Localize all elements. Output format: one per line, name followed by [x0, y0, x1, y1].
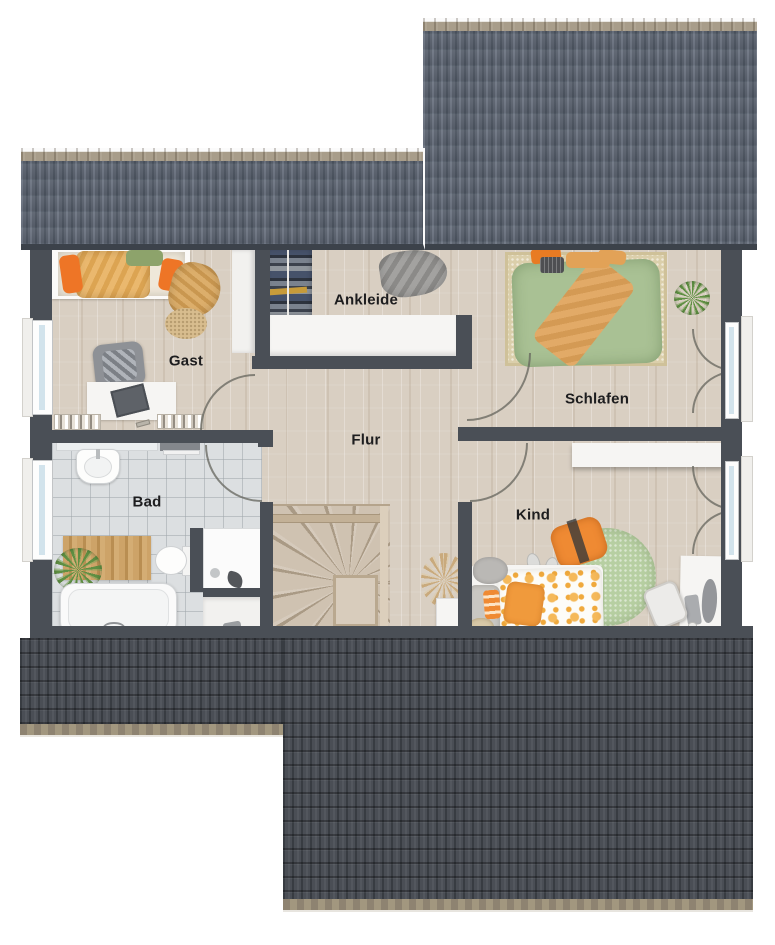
roof-ridge-right: [423, 18, 757, 31]
schlafen-blanket-orange: [531, 258, 636, 367]
gast-books-left: [54, 414, 101, 430]
gast-window-glass: [39, 325, 45, 410]
wall-schlafen-kind: [458, 427, 723, 441]
wall-ankleide-south: [252, 356, 472, 369]
gast-tall-wardrobe: [232, 250, 255, 353]
kind-window-glass: [729, 466, 734, 555]
wall-kind-west: [458, 502, 472, 628]
kind-cushion-striped: [483, 589, 501, 619]
schlafen-plant: [674, 281, 710, 315]
ankleide-sideboard: [268, 315, 458, 357]
room-label-flur: Flur: [351, 432, 380, 449]
bad-faucet: [96, 449, 100, 459]
wall-bad-corner: [258, 430, 273, 447]
floor-plan: Gast Ankleide Schlafen Flur Bad Kind: [0, 0, 775, 945]
room-label-kind: Kind: [516, 507, 550, 524]
bad-radiator-bar: [163, 450, 200, 455]
room-label-gast: Gast: [169, 353, 203, 370]
roof-bottom-right: [283, 638, 753, 912]
bad-shower-drain: [210, 568, 220, 578]
kind-wardrobe: [572, 443, 723, 467]
staircase-void: [333, 575, 378, 627]
schlafen-window-glass: [729, 327, 734, 414]
ankleide-rail-bar: [287, 248, 289, 316]
bad-window-glass: [39, 465, 45, 555]
wall-bad-east: [260, 502, 273, 628]
kind-window-sill: [741, 456, 753, 562]
wall-exterior-right: [721, 248, 742, 628]
gast-books-right: [157, 414, 204, 429]
roof-top-left: [21, 148, 425, 250]
bad-washbasin-bowl: [84, 456, 112, 478]
gast-armchair-cushion: [101, 348, 137, 382]
wall-gast-east: [255, 248, 270, 362]
wall-shower-south: [203, 588, 265, 597]
room-label-schlafen: Schlafen: [565, 391, 629, 408]
staircase-stringer: [380, 506, 388, 630]
room-label-bad: Bad: [133, 494, 162, 511]
schlafen-duvet: [511, 258, 663, 367]
roof-top-right: [423, 18, 757, 250]
roof-eave-left: [20, 724, 283, 737]
wall-shower-west: [190, 528, 203, 592]
room-label-ankleide: Ankleide: [334, 292, 398, 309]
wall-gast-south: [30, 430, 258, 443]
kind-blanket-orange: [502, 581, 545, 628]
ankleide-clothes-rail: [266, 248, 312, 316]
gast-pillow-green: [126, 250, 163, 266]
gast-round-rug: [165, 308, 207, 339]
bad-toilet-bowl: [155, 546, 187, 575]
wall-ankleide-schlafen-pillar: [456, 315, 472, 369]
roof-eave-right: [283, 899, 753, 912]
schlafen-window-sill: [741, 316, 753, 422]
staircase-handrail: [267, 514, 383, 523]
schlafen-pillow-3: [597, 249, 626, 266]
roof-bottom-left: [20, 638, 283, 737]
roof-ridge-left: [21, 148, 423, 161]
schlafen-basket: [540, 257, 564, 273]
